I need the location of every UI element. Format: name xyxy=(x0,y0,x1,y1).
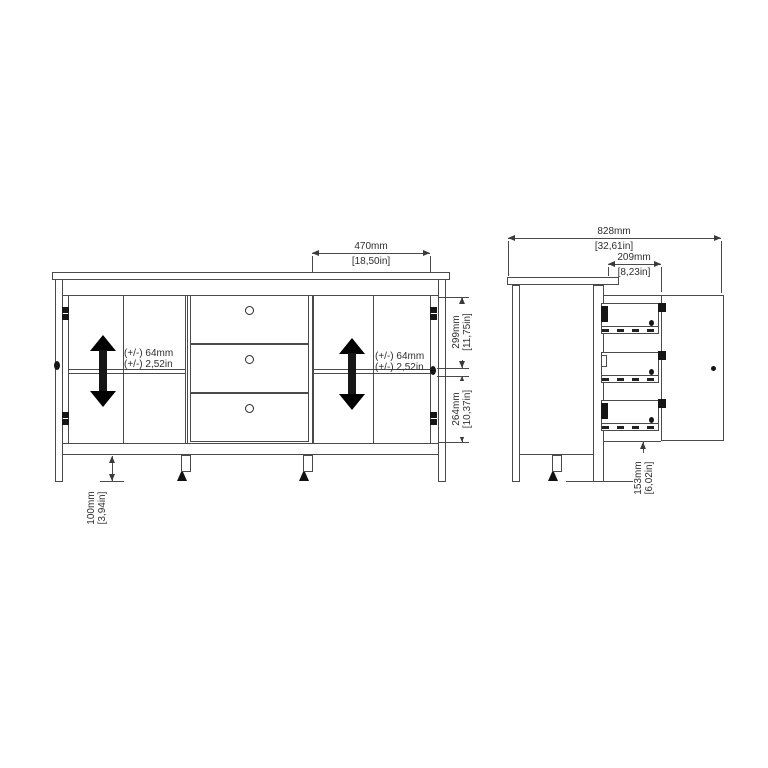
drawer-front-1 xyxy=(190,295,309,344)
drawer-clip-2 xyxy=(601,355,607,367)
dim-side-drawer-in: [8,23in] xyxy=(618,267,651,278)
runner-stop-2 xyxy=(649,369,654,375)
right-shelf-pin xyxy=(430,366,436,375)
front-leg-left xyxy=(181,455,191,472)
dim-side-depth-in: [32,61in] xyxy=(595,241,633,252)
side-foot xyxy=(548,472,558,481)
front-foot-right xyxy=(299,472,309,481)
runner-stop-1 xyxy=(649,320,654,326)
drawer-knob-1 xyxy=(245,306,254,315)
dim-front-lower-in: [10,37in] xyxy=(462,381,473,437)
drawer-front-3 xyxy=(190,393,309,442)
technical-drawing-canvas: (+/-) 64mm (+/-) 2,52in (+/-) 64mm (+/-)… xyxy=(0,0,768,768)
dim-front-upper-mm: 299mm xyxy=(451,304,462,360)
dim-side-leg-label: 153mm [6,02in] xyxy=(633,453,655,503)
dim-side-depth-mm: 828mm xyxy=(597,226,630,237)
dim-front-width-in: [18,50in] xyxy=(352,256,390,267)
drawer-knob-3 xyxy=(245,404,254,413)
dim-front-upper-in: [11,75in] xyxy=(462,304,473,360)
left-door-hinge-top xyxy=(62,307,69,313)
dim-front-leg-mm: 100mm xyxy=(86,483,97,533)
dim-front-leg-label: 100mm [3,94in] xyxy=(86,483,108,533)
dim-front-upper-label: 299mm [11,75in] xyxy=(451,304,473,360)
dim-front-leg-in: [3,94in] xyxy=(97,483,108,533)
side-top-panel xyxy=(507,277,619,285)
side-door-hinge-3 xyxy=(658,399,666,408)
dim-side-leg-mm: 153mm xyxy=(633,453,644,503)
drawer-runner-3 xyxy=(602,423,658,430)
runner-stop-3 xyxy=(649,417,654,423)
drawer-knob-2 xyxy=(245,355,254,364)
right-shelf-note: (+/-) 64mm (+/-) 2,52in xyxy=(375,351,424,373)
dim-side-drawer-mm: 209mm xyxy=(617,252,650,263)
front-section-divider-left xyxy=(187,295,188,443)
left-door-hinge-bottom-2 xyxy=(62,419,69,425)
right-door-hinge-bottom xyxy=(430,412,437,418)
front-plinth-line xyxy=(62,454,438,455)
front-foot-left xyxy=(177,472,187,481)
side-door-knob xyxy=(711,366,716,371)
right-shelf-note-in: (+/-) 2,52in xyxy=(375,362,424,373)
front-top-panel xyxy=(52,272,450,280)
left-shelf-note: (+/-) 64mm (+/-) 2,52in xyxy=(124,348,173,370)
front-leg-right xyxy=(303,455,313,472)
dim-front-lower-mm: 264mm xyxy=(451,381,462,437)
left-door-hinge-top-2 xyxy=(62,314,69,320)
right-door-hinge-top xyxy=(430,307,437,313)
front-right-side-panel xyxy=(438,279,446,482)
drawer-clip-3 xyxy=(601,403,608,419)
drawer-runner-1 xyxy=(602,326,658,333)
left-shelf-note-mm: (+/-) 64mm xyxy=(124,348,173,359)
right-door-hinge-top-2 xyxy=(430,314,437,320)
left-door-hinge-bottom xyxy=(62,412,69,418)
dim-front-width-mm: 470mm xyxy=(354,241,387,252)
left-shelf-pin xyxy=(54,361,60,370)
dim-side-leg-in: [6,02in] xyxy=(644,453,655,503)
side-leg xyxy=(552,455,562,472)
side-drawer-area-top xyxy=(604,295,661,296)
side-door-hinge-1 xyxy=(658,303,666,312)
side-back-panel xyxy=(512,285,520,482)
side-door-hinge-2 xyxy=(658,351,666,360)
left-shelf-note-in: (+/-) 2,52in xyxy=(124,359,173,370)
dim-front-lower-label: 264mm [10,37in] xyxy=(451,381,473,437)
right-shelf-note-mm: (+/-) 64mm xyxy=(375,351,424,362)
drawer-clip-1 xyxy=(601,306,608,322)
drawer-runner-2 xyxy=(602,375,658,382)
right-door-hinge-bottom-2 xyxy=(430,419,437,425)
drawer-front-2 xyxy=(190,344,309,393)
